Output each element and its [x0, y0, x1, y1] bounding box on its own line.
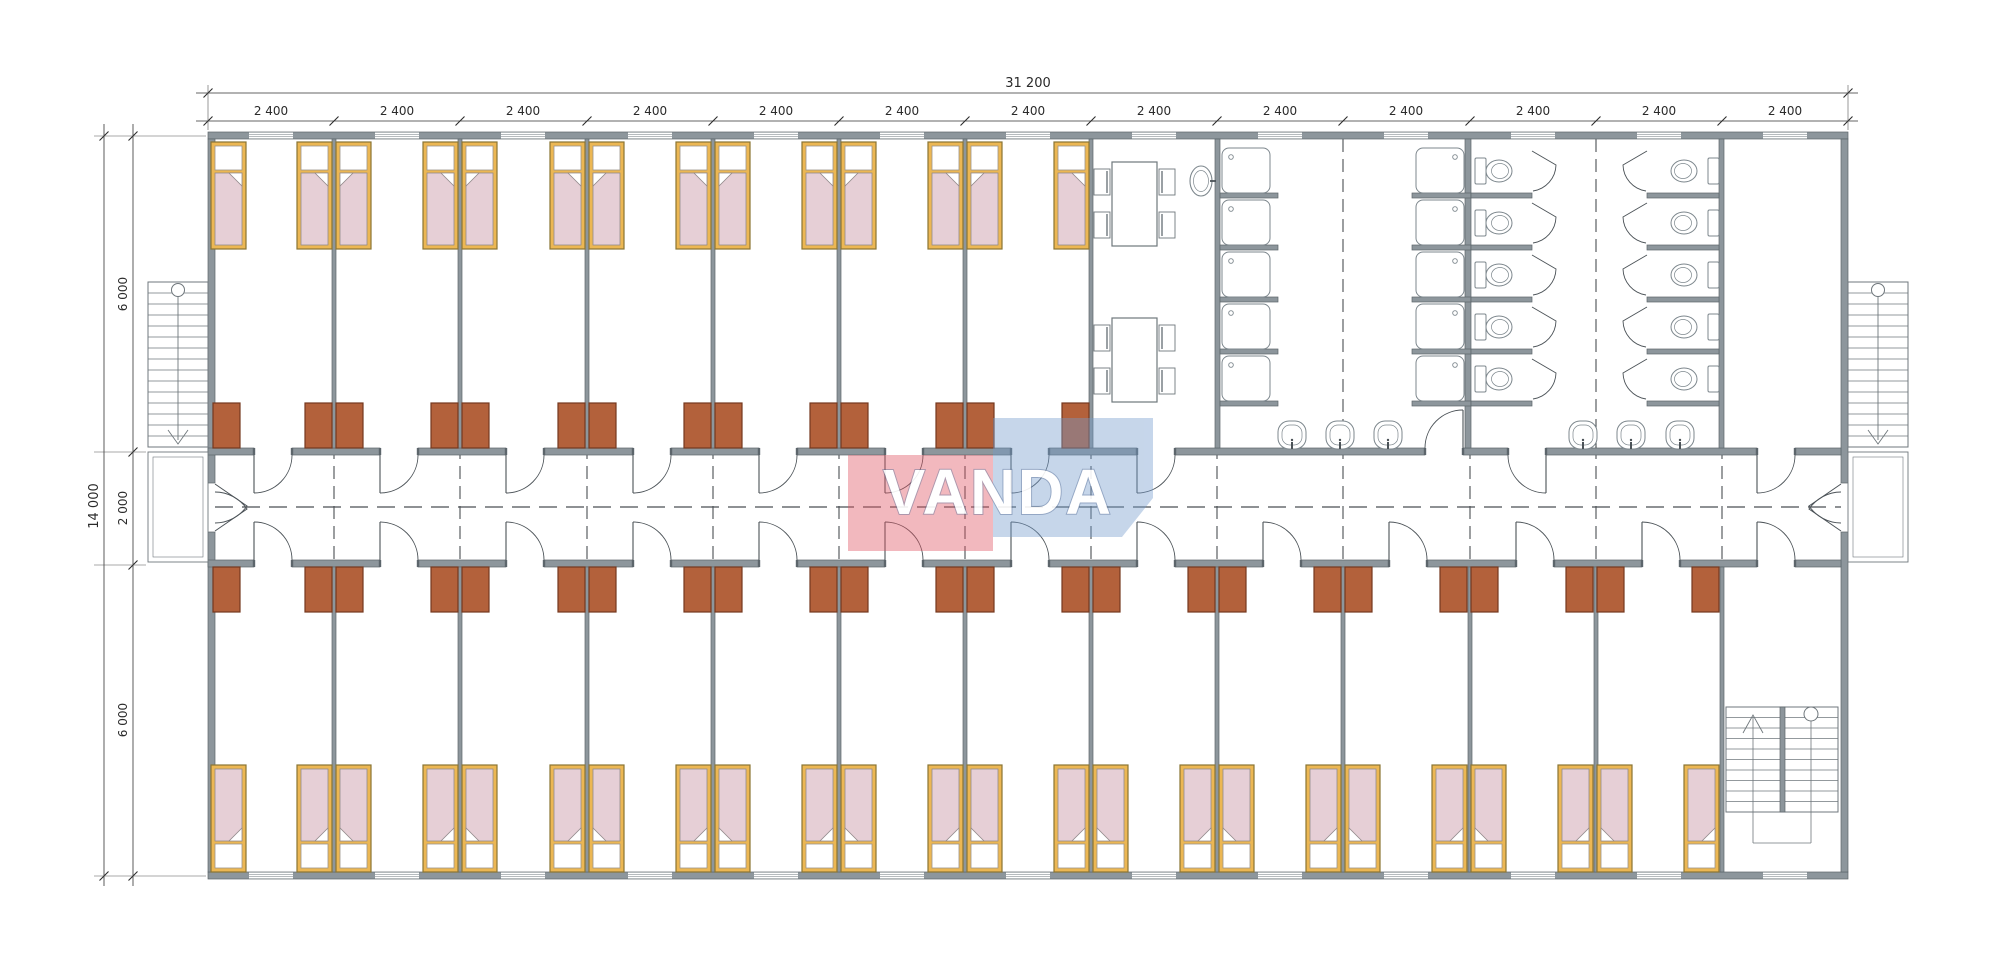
- wall: [1471, 245, 1532, 250]
- wall: [1554, 560, 1642, 567]
- door-jamb: [1545, 448, 1547, 455]
- bed-blanket: [215, 173, 242, 245]
- wall: [1412, 297, 1471, 302]
- bed-blanket: [215, 769, 242, 841]
- bed-blanket: [1436, 769, 1463, 841]
- door-jamb: [1174, 560, 1176, 567]
- wall: [1220, 401, 1278, 406]
- bed-blanket: [1058, 173, 1085, 245]
- window-glass: [249, 873, 293, 879]
- bed: [676, 142, 711, 249]
- bed-pillow: [971, 146, 998, 170]
- dimension-label: 2 400: [1263, 104, 1297, 118]
- bed: [1432, 765, 1467, 872]
- wardrobe: [213, 403, 240, 448]
- door-jamb: [417, 448, 419, 455]
- wall: [544, 448, 633, 455]
- wardrobe: [684, 567, 711, 612]
- bed-pillow: [806, 146, 833, 170]
- wall: [292, 560, 380, 567]
- door-jamb: [884, 448, 886, 455]
- window: [1511, 873, 1555, 879]
- door-jamb: [632, 560, 634, 567]
- bed-pillow: [466, 844, 493, 868]
- toilet-tank: [1475, 366, 1486, 392]
- door-jamb: [670, 448, 672, 455]
- wall: [1471, 193, 1532, 198]
- bed-pillow: [1688, 844, 1715, 868]
- wall: [1220, 193, 1278, 198]
- bed: [1471, 765, 1506, 872]
- bed-blanket: [971, 769, 998, 841]
- wash-basin: [1374, 421, 1402, 449]
- bed-pillow: [1058, 844, 1085, 868]
- window: [880, 133, 924, 139]
- shower-tray: [1416, 356, 1464, 401]
- door-jamb: [1388, 560, 1390, 567]
- wash-basin: [1569, 421, 1597, 449]
- window-glass: [501, 873, 545, 879]
- bed: [589, 765, 624, 872]
- door-jamb: [1174, 448, 1176, 455]
- bed-blanket: [719, 173, 746, 245]
- bed-blanket: [1475, 769, 1502, 841]
- dimension-label: 2 000: [116, 491, 130, 525]
- window-glass: [880, 133, 924, 139]
- door-jamb: [253, 560, 255, 567]
- window: [880, 873, 924, 879]
- bed: [423, 765, 458, 872]
- window-glass: [375, 133, 419, 139]
- wall: [418, 448, 506, 455]
- window: [754, 873, 798, 879]
- window: [628, 133, 672, 139]
- chair: [1159, 169, 1175, 195]
- toilet-tank: [1708, 262, 1719, 288]
- wall: [797, 448, 885, 455]
- door-jamb: [417, 560, 419, 567]
- wall: [1412, 193, 1471, 198]
- dimension-label: 2 400: [254, 104, 288, 118]
- wall: [1647, 193, 1719, 198]
- window: [1258, 133, 1302, 139]
- door-jamb: [1679, 560, 1681, 567]
- toilet-tank: [1475, 210, 1486, 236]
- wall: [1647, 245, 1719, 250]
- toilet: [1475, 158, 1512, 184]
- wall: [1719, 139, 1724, 448]
- wall: [208, 560, 254, 567]
- wall: [1427, 560, 1516, 567]
- bed: [1054, 765, 1089, 872]
- dimension-label: 2 400: [1011, 104, 1045, 118]
- wardrobe: [684, 403, 711, 448]
- window-glass: [1006, 133, 1050, 139]
- wall: [1471, 297, 1532, 302]
- wall: [1795, 560, 1841, 567]
- wardrobe: [1440, 567, 1467, 612]
- shower-tray-rect: [1222, 200, 1270, 245]
- bed: [462, 142, 497, 249]
- wardrobe: [810, 403, 837, 448]
- wall: [1220, 349, 1278, 354]
- bed-pillow: [340, 146, 367, 170]
- bed-blanket: [845, 769, 872, 841]
- wall: [1471, 401, 1532, 406]
- wardrobe: [1471, 567, 1498, 612]
- chair: [1094, 212, 1110, 238]
- window: [375, 873, 419, 879]
- wardrobe: [1093, 567, 1120, 612]
- bed: [715, 142, 750, 249]
- bed-blanket: [806, 769, 833, 841]
- dimension-label: 2 400: [1389, 104, 1423, 118]
- wardrobe: [462, 403, 489, 448]
- door-jamb: [543, 448, 545, 455]
- window-glass: [375, 873, 419, 879]
- bed-blanket: [301, 769, 328, 841]
- bed-blanket: [1184, 769, 1211, 841]
- toilet-tank: [1475, 314, 1486, 340]
- bed-blanket: [680, 173, 707, 245]
- bed-pillow: [554, 146, 581, 170]
- window-glass: [1384, 133, 1428, 139]
- bed-blanket: [1349, 769, 1376, 841]
- window: [1132, 873, 1176, 879]
- wall: [1720, 567, 1724, 872]
- shower-tray: [1222, 200, 1270, 245]
- shower-tray-rect: [1222, 356, 1270, 401]
- shower-tray: [1222, 356, 1270, 401]
- bed: [715, 765, 750, 872]
- wardrobe: [213, 567, 240, 612]
- bed-pillow: [932, 146, 959, 170]
- door-jamb: [1756, 560, 1758, 567]
- window-glass: [1132, 873, 1176, 879]
- shower-tray: [1416, 252, 1464, 297]
- window: [249, 873, 293, 879]
- bed: [550, 142, 585, 249]
- wall: [797, 560, 885, 567]
- bed-blanket: [806, 173, 833, 245]
- bed-pillow: [593, 844, 620, 868]
- bed: [589, 142, 624, 249]
- toilet-tank: [1708, 314, 1719, 340]
- window-glass: [1511, 133, 1555, 139]
- wardrobe: [431, 403, 458, 448]
- wardrobe: [1345, 567, 1372, 612]
- bed: [297, 142, 332, 249]
- toilet: [1475, 262, 1512, 288]
- wall: [332, 139, 336, 448]
- bed-pillow: [1601, 844, 1628, 868]
- wall: [1215, 139, 1220, 448]
- chair: [1159, 212, 1175, 238]
- door-jamb: [670, 560, 672, 567]
- window: [1132, 133, 1176, 139]
- wardrobe: [589, 403, 616, 448]
- bed-blanket: [971, 173, 998, 245]
- wall: [332, 567, 336, 872]
- exterior-stair: [148, 282, 208, 562]
- basin-tap-dot: [1339, 439, 1341, 441]
- toilet: [1475, 366, 1512, 392]
- wall: [1647, 349, 1719, 354]
- wardrobe: [841, 403, 868, 448]
- wardrobe: [558, 567, 585, 612]
- wardrobe: [1314, 567, 1341, 612]
- wash-basin: [1326, 421, 1354, 449]
- window-glass: [1132, 133, 1176, 139]
- bed: [967, 765, 1002, 872]
- shower-tray-rect: [1416, 200, 1464, 245]
- bed-blanket: [680, 769, 707, 841]
- bed: [211, 765, 246, 872]
- bed-pillow: [719, 844, 746, 868]
- window: [249, 133, 293, 139]
- window-glass: [1006, 873, 1050, 879]
- window: [1384, 133, 1428, 139]
- window-glass: [628, 133, 672, 139]
- stair-start-circle: [1804, 707, 1818, 721]
- shower-tray-rect: [1416, 252, 1464, 297]
- bed-pillow: [427, 844, 454, 868]
- bed-pillow: [466, 146, 493, 170]
- window-glass: [1637, 133, 1681, 139]
- dimension-label: 6 000: [116, 703, 130, 737]
- shower-tray: [1222, 304, 1270, 349]
- bed-pillow: [845, 844, 872, 868]
- door-jamb: [1262, 560, 1264, 567]
- wardrobe: [589, 567, 616, 612]
- basin-tap-dot: [1582, 439, 1584, 441]
- bed-pillow: [593, 146, 620, 170]
- door-jamb: [1424, 448, 1426, 455]
- toilet-tank: [1475, 262, 1486, 288]
- shower-tray: [1416, 304, 1464, 349]
- door-jamb: [632, 448, 634, 455]
- wash-basin: [1278, 421, 1306, 449]
- window-glass: [249, 133, 293, 139]
- dimension-label: 2 400: [1516, 104, 1550, 118]
- door-jamb: [1794, 560, 1796, 567]
- wardrobe: [336, 403, 363, 448]
- wardrobe: [558, 403, 585, 448]
- bed-pillow: [1097, 844, 1124, 868]
- chair: [1159, 368, 1175, 394]
- bed-pillow: [301, 844, 328, 868]
- bed: [841, 142, 876, 249]
- shower-tray: [1222, 148, 1270, 193]
- bed-pillow: [215, 146, 242, 170]
- bed: [550, 765, 585, 872]
- bed-pillow: [301, 146, 328, 170]
- door-jamb: [291, 560, 293, 567]
- window-glass: [1763, 133, 1807, 139]
- door-jamb: [1426, 560, 1428, 567]
- bed-blanket: [593, 769, 620, 841]
- bed: [967, 142, 1002, 249]
- bed-blanket: [593, 173, 620, 245]
- door-jamb: [291, 448, 293, 455]
- wall: [1463, 448, 1508, 455]
- wall: [1841, 139, 1848, 483]
- window: [501, 873, 545, 879]
- wardrobe: [936, 567, 963, 612]
- bed: [462, 765, 497, 872]
- bed-blanket: [1058, 769, 1085, 841]
- door-jamb: [379, 560, 381, 567]
- door-jamb: [543, 560, 545, 567]
- table-top: [1112, 162, 1157, 246]
- door-jamb: [796, 560, 798, 567]
- bed-blanket: [466, 173, 493, 245]
- wardrobe: [715, 567, 742, 612]
- door-jamb: [1553, 560, 1555, 567]
- dimension-label: 2 400: [885, 104, 919, 118]
- bed-blanket: [1223, 769, 1250, 841]
- door-jamb: [505, 448, 507, 455]
- bed-pillow: [1562, 844, 1589, 868]
- basin-tap-dot: [1387, 439, 1389, 441]
- bed-blanket: [719, 769, 746, 841]
- bed-blanket: [427, 173, 454, 245]
- bed: [1180, 765, 1215, 872]
- door-jamb: [1756, 448, 1758, 455]
- wardrobe: [841, 567, 868, 612]
- window: [1006, 873, 1050, 879]
- bed: [423, 142, 458, 249]
- shower-tray-rect: [1416, 148, 1464, 193]
- wall: [1220, 245, 1278, 250]
- bed-blanket: [301, 173, 328, 245]
- window: [1384, 873, 1428, 879]
- bed-blanket: [554, 769, 581, 841]
- chair: [1159, 325, 1175, 351]
- door-jamb: [379, 448, 381, 455]
- bed-pillow: [1223, 844, 1250, 868]
- logo-text: VANDA: [883, 456, 1113, 528]
- stair-landing: [1848, 452, 1908, 562]
- bed-blanket: [1688, 769, 1715, 841]
- bed: [802, 142, 837, 249]
- bed: [1558, 765, 1593, 872]
- bed-pillow: [1349, 844, 1376, 868]
- bed: [928, 142, 963, 249]
- bed: [1684, 765, 1719, 872]
- bed-pillow: [340, 844, 367, 868]
- bed-pillow: [1475, 844, 1502, 868]
- bed-blanket: [340, 173, 367, 245]
- toilet-tank: [1708, 210, 1719, 236]
- bed-pillow: [932, 844, 959, 868]
- door-jamb: [1515, 560, 1517, 567]
- wall: [671, 560, 759, 567]
- wall: [1301, 560, 1389, 567]
- door-jamb: [1462, 448, 1464, 455]
- window-glass: [1763, 873, 1807, 879]
- window: [1258, 873, 1302, 879]
- toilet: [1475, 314, 1512, 340]
- dimension-label: 2 400: [1137, 104, 1171, 118]
- window-glass: [754, 133, 798, 139]
- bed: [928, 765, 963, 872]
- shower-tray: [1416, 200, 1464, 245]
- exterior-stair: [1848, 282, 1908, 562]
- bed-blanket: [845, 173, 872, 245]
- stair-start-circle: [172, 284, 185, 297]
- bed-pillow: [427, 146, 454, 170]
- door-jamb: [796, 448, 798, 455]
- bed: [1597, 765, 1632, 872]
- wall: [458, 567, 462, 872]
- dimension-label: 6 000: [116, 277, 130, 311]
- door-jamb: [1507, 448, 1509, 455]
- window: [1763, 133, 1807, 139]
- basin-tap-dot: [1291, 439, 1293, 441]
- window-glass: [1258, 873, 1302, 879]
- window-glass: [1637, 873, 1681, 879]
- window: [1637, 873, 1681, 879]
- floor-plan: 31 2002 4002 4002 4002 4002 4002 4002 40…: [0, 0, 2000, 977]
- wall: [208, 448, 254, 455]
- wardrobe: [431, 567, 458, 612]
- wall: [671, 448, 759, 455]
- bed-pillow: [680, 844, 707, 868]
- window: [1511, 133, 1555, 139]
- bed-pillow: [1184, 844, 1211, 868]
- bed-pillow: [845, 146, 872, 170]
- wall: [1471, 349, 1532, 354]
- window: [375, 133, 419, 139]
- wardrobe: [1566, 567, 1593, 612]
- chair: [1094, 169, 1110, 195]
- window-glass: [628, 873, 672, 879]
- wardrobe: [462, 567, 489, 612]
- wall: [1412, 349, 1471, 354]
- wash-basin: [1666, 421, 1694, 449]
- bed-pillow: [719, 146, 746, 170]
- stair-start-circle: [1872, 284, 1885, 297]
- bed-blanket: [932, 769, 959, 841]
- shower-tray-rect: [1222, 148, 1270, 193]
- wardrobe: [936, 403, 963, 448]
- bed: [1219, 765, 1254, 872]
- wardrobe: [305, 567, 332, 612]
- window-glass: [880, 873, 924, 879]
- wall: [1220, 297, 1278, 302]
- window-glass: [1511, 873, 1555, 879]
- door-jamb: [884, 560, 886, 567]
- bed-blanket: [466, 769, 493, 841]
- bed: [336, 142, 371, 249]
- dimension-label: 2 400: [1642, 104, 1676, 118]
- bed: [676, 765, 711, 872]
- wall: [1647, 401, 1719, 406]
- wardrobe: [1062, 567, 1089, 612]
- bed: [1093, 765, 1128, 872]
- wall: [923, 560, 1011, 567]
- stair-landing: [148, 452, 208, 562]
- window-glass: [754, 873, 798, 879]
- basin-tap-dot: [1679, 439, 1681, 441]
- window: [1006, 133, 1050, 139]
- bed-pillow: [215, 844, 242, 868]
- wardrobe: [1597, 567, 1624, 612]
- stair-divider: [1780, 707, 1785, 812]
- door-jamb: [758, 448, 760, 455]
- window: [628, 873, 672, 879]
